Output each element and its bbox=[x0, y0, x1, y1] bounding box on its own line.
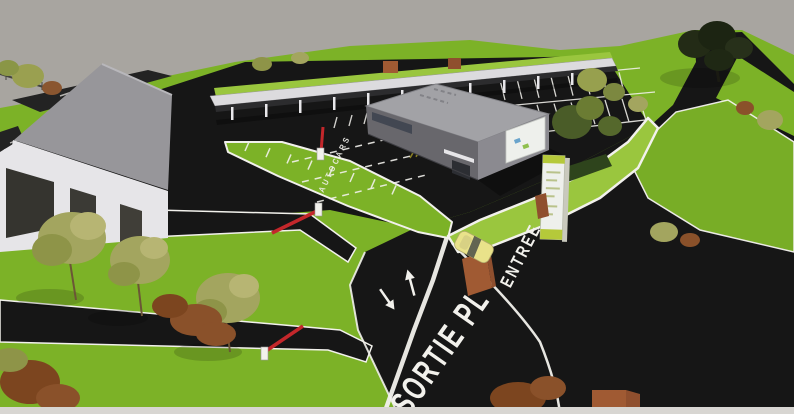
site-rendering: SORTIE PL ENTREE AUTOCARS bbox=[0, 0, 794, 414]
rendering-canvas: SORTIE PL ENTREE AUTOCARS bbox=[0, 0, 794, 414]
bin-enclosure bbox=[383, 61, 398, 73]
bottom-strip bbox=[0, 407, 794, 414]
bin-enclosure bbox=[448, 58, 461, 69]
